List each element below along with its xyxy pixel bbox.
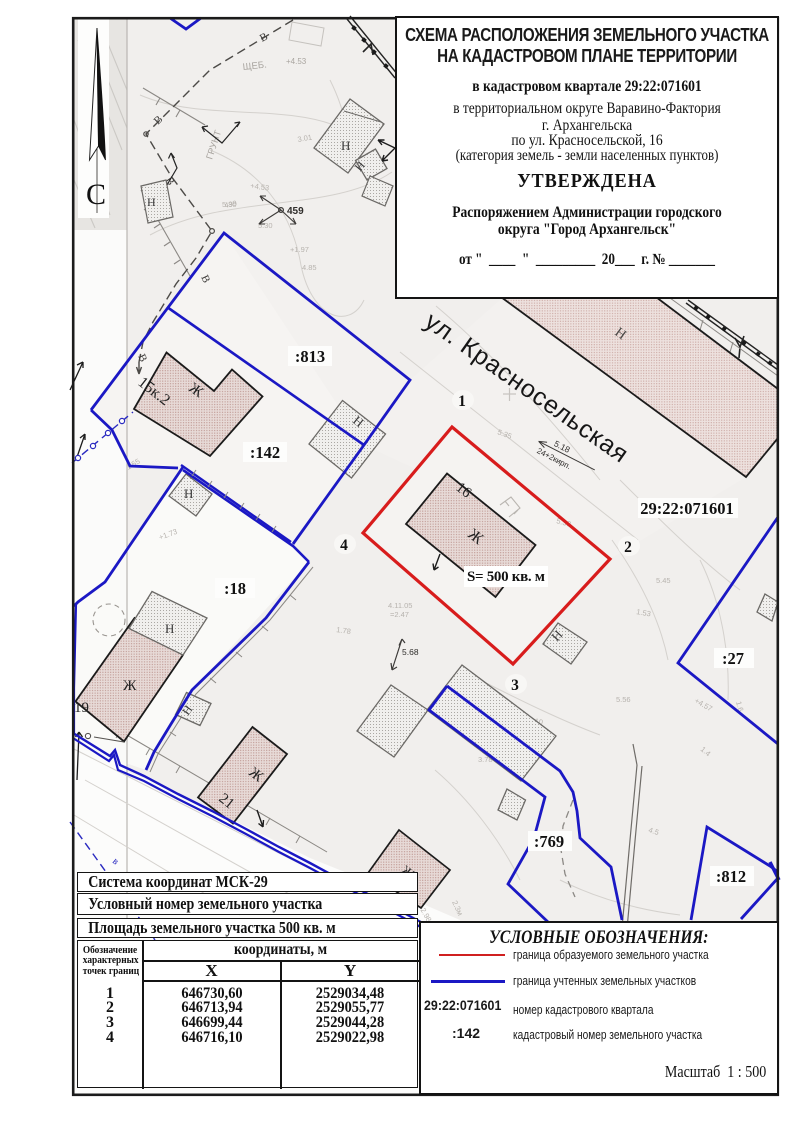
svg-text:459: 459 [287,206,304,217]
svg-text:5.68: 5.68 [402,647,419,657]
svg-text::142: :142 [250,443,280,462]
svg-text:Н: Н [341,138,350,153]
svg-text:1: 1 [458,393,466,410]
svg-text:3: 3 [511,677,519,694]
svg-text:5.45: 5.45 [656,576,671,585]
svg-text:+1.97: +1.97 [290,245,309,254]
svg-text::18: :18 [224,579,246,598]
svg-text:Н: Н [165,621,174,636]
svg-text:5.56: 5.56 [616,695,631,704]
svg-text:4: 4 [340,537,348,554]
svg-text:4.11.05: 4.11.05 [388,601,412,610]
svg-text::27: :27 [722,649,744,668]
svg-text:5.30: 5.30 [222,200,237,209]
svg-text:2: 2 [624,539,632,556]
svg-text:Н: Н [147,195,156,209]
svg-text:=2.47: =2.47 [390,610,409,619]
svg-text:29:22:071601: 29:22:071601 [640,499,734,518]
svg-text:19: 19 [74,700,89,716]
svg-text:Н: Н [184,486,193,501]
svg-text:S= 500 кв. м: S= 500 кв. м [467,569,545,585]
svg-text:+4.53: +4.53 [286,57,307,66]
svg-text::813: :813 [295,347,325,366]
svg-text:Ж: Ж [123,678,137,694]
svg-text::769: :769 [534,832,564,851]
svg-text:4.85: 4.85 [302,263,317,272]
svg-text:С: С [86,178,106,211]
svg-text::812: :812 [716,867,746,886]
